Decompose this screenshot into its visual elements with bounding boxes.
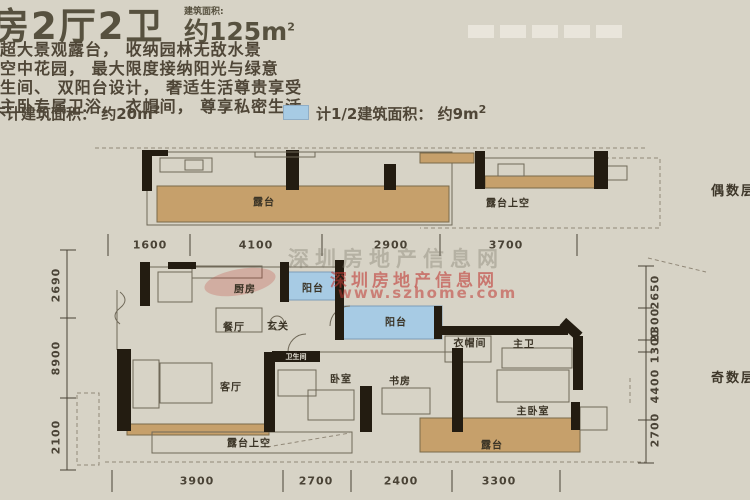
top-watermark-boxes — [468, 25, 622, 38]
room-label-terrace-bottom: 露台 — [481, 437, 503, 452]
room-label-living: 客厅 — [220, 379, 242, 394]
room-label-kitchen: 厨房 — [234, 281, 256, 296]
room-label-balcony-main: 阳台 — [385, 314, 407, 329]
dim-left-2100: 2100 — [50, 420, 63, 455]
room-label-bedroom: 卧室 — [330, 371, 352, 386]
room-label-study: 书房 — [389, 373, 411, 388]
legend-item-excluded-text: 不计建筑面积： 约20m — [0, 105, 153, 123]
room-label-balcony-north: 阳台 — [302, 280, 324, 295]
dim-bottom-2400: 2400 — [384, 475, 419, 488]
legend-item-half: 计1/2建筑面积： 约9m2 — [316, 103, 486, 124]
room-label-dining: 餐厅 — [223, 319, 245, 334]
dim-right-1300: 1300 — [649, 329, 662, 364]
dim-right-2700: 2700 — [649, 413, 662, 448]
watermark-url: www.szhome.com — [338, 284, 517, 302]
dim-bottom-2700: 2700 — [299, 475, 334, 488]
room-label-wardrobe: 衣帽间 — [454, 335, 487, 350]
floorplan-page: 房2厅2卫 建筑面积: 约125m2 的超大景观露台， 收纳园林无敌水景 墅空中… — [0, 0, 750, 500]
room-label-terrace-void-bottom: 露台上空 — [227, 435, 271, 450]
room-label-terrace-top: 露台 — [253, 194, 275, 209]
dim-bottom-3900: 3900 — [180, 475, 215, 488]
dim-right-4400: 4400 — [649, 369, 662, 404]
room-label-bathroom: 卫生间 — [286, 352, 307, 362]
dim-bottom-3300: 3300 — [482, 475, 517, 488]
room-label-terrace-void-top: 露台上空 — [486, 195, 530, 210]
legend-item-half-sup: 2 — [479, 103, 487, 116]
legend-item-excluded-sup: 2 — [153, 103, 161, 116]
room-label-master-bedroom: 主卧室 — [517, 403, 550, 418]
dim-left-8900: 8900 — [50, 341, 63, 376]
area-value-sup: 2 — [287, 21, 295, 34]
room-label-foyer: 玄关 — [267, 318, 289, 333]
dim-top-4100: 4100 — [239, 239, 274, 252]
floor-tag-even: 偶数层 — [711, 180, 750, 199]
dim-left-2690: 2690 — [50, 268, 63, 303]
dim-right-2650: 2650 — [649, 275, 662, 310]
legend-item-half-text: 计1/2建筑面积： 约9m — [316, 105, 479, 123]
floor-tag-odd: 奇数层 — [711, 367, 750, 386]
legend-item-excluded: 不计建筑面积： 约20m2 — [0, 103, 160, 124]
legend-half-area-swatch — [283, 105, 309, 120]
dim-top-1600: 1600 — [133, 239, 168, 252]
left-dimension-line — [60, 250, 99, 470]
room-label-master-bath: 主卫 — [513, 336, 535, 351]
